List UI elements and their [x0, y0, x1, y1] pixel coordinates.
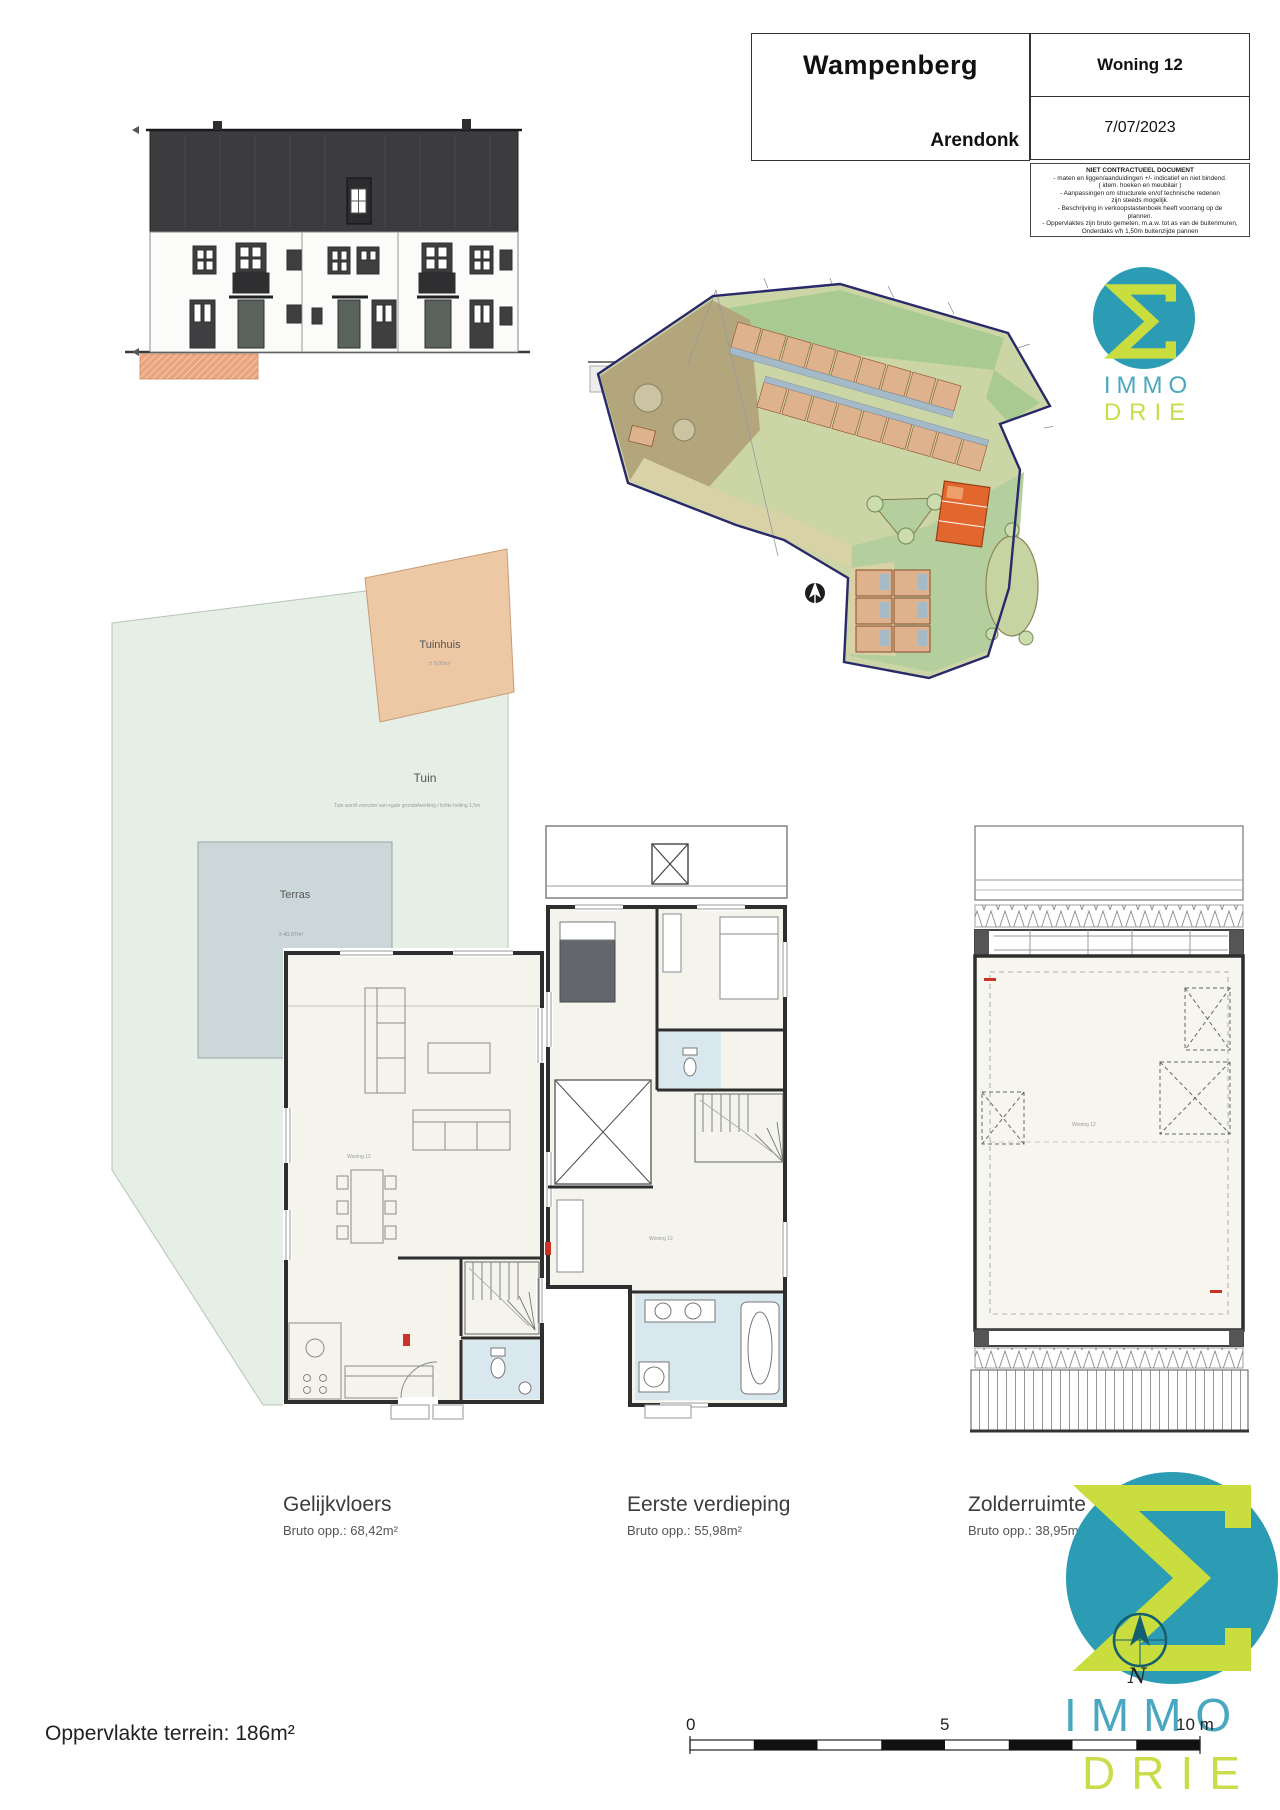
level-markers: [132, 126, 139, 356]
floor-plan-attic: Woning 12: [970, 822, 1250, 1437]
floor-plan-first: Woning 12: [545, 822, 790, 1423]
disclaimer-line: - maten en liggen/aanduidingen +/- indic…: [1035, 175, 1245, 183]
front-elevation-drawing: [125, 95, 530, 385]
scale-tick-0: 0: [686, 1715, 695, 1734]
disclaimer-box: NIET CONTRACTUEEL DOCUMENT - maten en li…: [1030, 163, 1250, 237]
disclaimer-line: plannen.: [1035, 213, 1245, 221]
disclaimer-line: ( idem. hoeken en meubilair ): [1035, 182, 1245, 190]
tuinhuis-label: Tuinhuis: [419, 639, 461, 651]
disclaimer-title: NIET CONTRACTUEEL DOCUMENT: [1035, 167, 1245, 175]
unit-number: Woning 12: [1097, 55, 1183, 75]
scale-bar: 0 5 10 m: [680, 1700, 1230, 1765]
north-arrow-icon: [805, 582, 825, 603]
site-plan-drawing: [588, 278, 1053, 683]
floor-label-first: Eerste verdieping Bruto opp.: 55,98m²: [627, 1493, 790, 1538]
tuin-label: Tuin: [414, 771, 437, 785]
title-block-unit: Woning 12: [1030, 33, 1250, 97]
scale-tick-10: 10 m: [1176, 1715, 1214, 1734]
sigma-icon: [1093, 267, 1195, 369]
floor-title: Gelijkvloers: [283, 1493, 398, 1517]
unit-tag: Woning 12: [649, 1236, 673, 1242]
disclaimer-line: - Beschrijving in verkoopslastenboek hee…: [1035, 205, 1245, 213]
floor-area: Bruto opp.: 55,98m²: [627, 1523, 790, 1538]
title-block-project: Wampenberg Arendonk: [751, 33, 1030, 161]
site-area-text: Oppervlakte terrein: 186m²: [45, 1722, 295, 1746]
brand-name-top: IMMO: [1085, 372, 1212, 400]
disclaimer-line: Onderdaks v/h 1,50m buitenzijde pannen: [1035, 228, 1245, 236]
north-label: N: [1128, 1664, 1146, 1688]
dormer-window: [347, 178, 371, 224]
unit-tag: Woning 12: [1072, 1122, 1096, 1128]
highlighted-unit-woning-12: [936, 481, 990, 547]
plan-marker: [403, 1334, 410, 1346]
disclaimer-line: - Oppervlaktes zijn bruto gemeten, m.a.w…: [1035, 220, 1245, 228]
scale-tick-5: 5: [940, 1715, 949, 1734]
floor-title: Eerste verdieping: [627, 1493, 790, 1517]
brand-name-bottom: DRIE: [1085, 399, 1212, 427]
title-block-date: 7/07/2023: [1030, 96, 1250, 160]
terras-label: Terras: [280, 889, 311, 901]
plan-date: 7/07/2023: [1104, 119, 1175, 137]
project-name: Wampenberg: [752, 34, 1029, 81]
compass-icon: [1040, 1462, 1280, 1702]
floor-label-ground: Gelijkvloers Bruto opp.: 68,42m²: [283, 1493, 398, 1538]
plan-marker: [545, 1242, 551, 1255]
tuin-note: Tuin wordt voorzien van egale grondafwer…: [334, 803, 480, 809]
floor-plan-ground: Woning 12: [283, 948, 545, 1423]
tuinhuis-area-note: ± 9,00m²: [429, 661, 451, 667]
municipality-name: Arendonk: [752, 130, 1029, 152]
disclaimer-line: zijn steeds mogelijk.: [1035, 197, 1245, 205]
ground-hatch-strip: [140, 354, 258, 379]
unit-tag: Woning 12: [347, 1154, 371, 1160]
immo-drie-logo-small: IMMO DRIE: [1085, 255, 1220, 435]
plan-sheet: Wampenberg Arendonk Woning 12 7/07/2023 …: [0, 0, 1280, 1810]
floor-area: Bruto opp.: 68,42m²: [283, 1523, 398, 1538]
terras-area-note: ± 40,07m²: [279, 932, 304, 938]
tuinhuis-area: [365, 549, 514, 722]
disclaimer-line: - Aanpassingen om structurele en/of tech…: [1035, 190, 1245, 198]
